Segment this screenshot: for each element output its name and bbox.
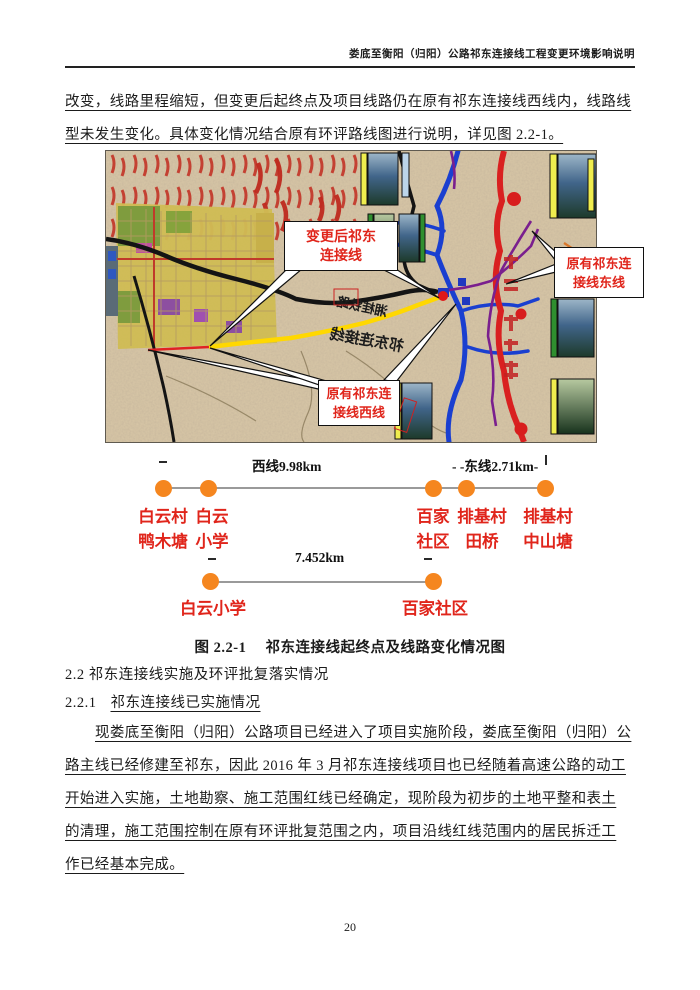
tick xyxy=(545,455,547,465)
paragraph-line: 型未发生变化。具体变化情况结合原有环评路线图进行说明，详见图 2.2-1。 xyxy=(65,119,639,152)
station-name-line: 排基村 xyxy=(508,505,588,530)
diagram-line xyxy=(163,487,545,489)
section-heading-2-2-1: 2.2.1祁东连接线已实施情况 xyxy=(65,691,261,712)
station-name-line: 中山塘 xyxy=(508,530,588,555)
paragraph-line: 改变，线路里程缩短，但变更后起终点及项目线路仍在原有祁东连接线西线内，线路线 xyxy=(65,86,639,119)
east-length-label: - -东线2.71km- xyxy=(452,455,538,475)
station-name-line: 小学 xyxy=(172,530,252,555)
header-rule xyxy=(65,66,635,68)
route-change-map: 湘桂铁路 祁东连接线 xyxy=(105,150,597,443)
diagram-line xyxy=(210,581,433,583)
tick xyxy=(159,461,167,463)
document-page: 娄底至衡阳（归阳）公路祁东连接线工程变更环境影响说明 改变，线路里程缩短，但变更… xyxy=(0,0,700,990)
station-dot xyxy=(155,480,172,497)
callout-original-east-line: 原有祁东连 接线东线 xyxy=(554,247,644,298)
paragraph-1: 改变，线路里程缩短，但变更后起终点及项目线路仍在原有祁东连接线西线内，线路线 型… xyxy=(65,86,639,152)
station-label: 排基村 中山塘 xyxy=(508,505,588,555)
figure-caption: 图 2.2-1 祁东连接线起终点及线路变化情况图 xyxy=(0,636,700,657)
station-dot xyxy=(425,573,442,590)
map-planning-zones xyxy=(106,203,277,349)
station-dot xyxy=(458,480,475,497)
paragraph-line: 路主线已经修建至祁东，因此 2016 年 3 月祁东连接线项目也已经随着高速公路… xyxy=(65,750,639,783)
station-label: 百家社区 xyxy=(395,597,475,622)
paragraph-line: 现娄底至衡阳（归阳）公路项目已经进入了项目实施阶段，娄底至衡阳（归阳）公 xyxy=(65,717,639,750)
callout-text: 变更后祁东 xyxy=(306,227,376,246)
callout-changed-line: 变更后祁东 连接线 xyxy=(284,221,398,271)
paragraph-line: 的清理，施工范围控制在原有环评批复范围之内，项目沿线红线范围内的居民拆迁工 xyxy=(65,816,639,849)
section-title: 祁东连接线已实施情况 xyxy=(111,695,261,711)
callout-text: 原有祁东连 xyxy=(566,254,631,273)
page-header-title: 娄底至衡阳（归阳）公路祁东连接线工程变更环境影响说明 xyxy=(65,46,635,61)
page-number: 20 xyxy=(0,920,700,935)
station-dot xyxy=(200,480,217,497)
callout-text: 接线东线 xyxy=(573,273,625,292)
paragraph-2: 现娄底至衡阳（归阳）公路项目已经进入了项目实施阶段，娄底至衡阳（归阳）公 路主线… xyxy=(65,717,639,882)
station-dot xyxy=(537,480,554,497)
tick xyxy=(208,558,216,560)
callout-text: 连接线 xyxy=(320,246,362,265)
station-dot xyxy=(202,573,219,590)
callout-text: 原有祁东连 xyxy=(326,384,391,403)
west-length-label: 西线9.98km xyxy=(252,455,321,475)
callout-original-west-line: 原有祁东连 接线西线 xyxy=(318,380,400,426)
section-number: 2.2.1 xyxy=(65,695,97,711)
station-name-line: 白云 xyxy=(172,505,252,530)
paragraph-line: 作已经基本完成。 xyxy=(65,849,639,882)
section-heading-2-2: 2.2 祁东连接线实施及环评批复落实情况 xyxy=(65,663,329,684)
station-label: 白云 小学 xyxy=(172,505,252,555)
length-label: 7.452km xyxy=(295,550,344,566)
station-dot xyxy=(425,480,442,497)
paragraph-line: 开始进入实施，土地勘察、施工范围红线已经确定，现阶段为初步的土地平整和表土 xyxy=(65,783,639,816)
tick xyxy=(424,558,432,560)
callout-text: 接线西线 xyxy=(333,403,385,422)
station-label: 白云小学 xyxy=(173,597,253,622)
